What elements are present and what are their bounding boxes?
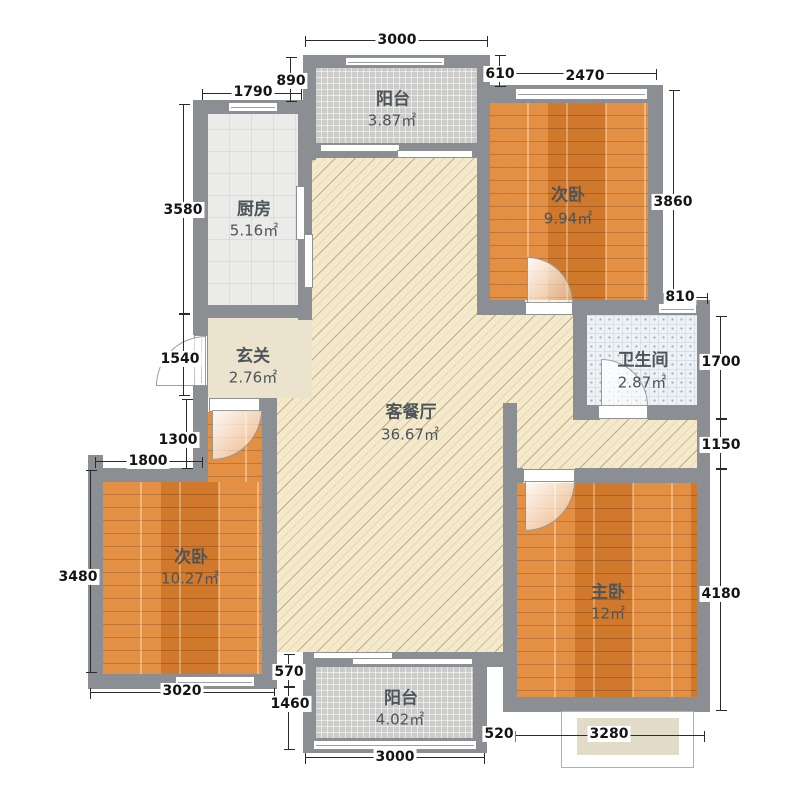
wall — [193, 305, 312, 318]
dim-label-kitchen-depth: 3580 — [162, 202, 205, 218]
sliding-door-balcony-top-panel — [320, 144, 400, 152]
sliding-door-kitchen-panel — [296, 186, 305, 240]
window-balcony-top — [345, 57, 445, 66]
wall — [503, 403, 517, 712]
room-label-balcony-bottom: 阳台 — [384, 684, 418, 709]
room-area-balcony-top: 3.87㎡ — [368, 110, 416, 131]
dim-label-bedroom-top-depth: 3860 — [652, 194, 695, 210]
dim-label-bath-offset: 810 — [663, 289, 696, 305]
room-label-living: 客餐厅 — [386, 398, 437, 423]
room-area-living: 36.67㎡ — [381, 424, 439, 445]
room-label-bedroom-left: 次卧 — [174, 543, 208, 568]
room-area-master: 12㎡ — [591, 603, 625, 624]
room-label-master: 主卧 — [591, 578, 625, 603]
floor-plan: 3000 1790 890 610 2470 3580 1540 1300 18… — [0, 0, 800, 800]
window-bedroom-top — [515, 88, 648, 100]
dim-label-balcony2-depth: 1460 — [269, 696, 312, 712]
dim-label-bedroom-top-width: 2470 — [564, 68, 607, 84]
window-kitchen — [228, 102, 278, 112]
wall — [477, 300, 525, 315]
dim-label-bedroom-left-depth: 3480 — [57, 569, 100, 585]
dim-label-bath-depth: 1700 — [700, 354, 743, 370]
dim-label-living-strip: 1150 — [700, 437, 743, 453]
dim-label-balcony2-offset: 570 — [272, 664, 305, 680]
bedroom-top-door — [525, 302, 573, 315]
sliding-door-kitchen-panel — [304, 234, 313, 288]
room-area-balcony-bottom: 4.02㎡ — [376, 709, 424, 730]
sliding-door-balcony-bottom-panel — [352, 658, 473, 665]
room-area-bathroom: 2.87㎡ — [618, 372, 666, 393]
room-label-bathroom: 卫生间 — [618, 346, 669, 371]
room-label-bedroom-top: 次卧 — [551, 181, 585, 206]
room-label-balcony-top: 阳台 — [376, 85, 410, 110]
room-area-bedroom-top: 9.94㎡ — [544, 208, 592, 229]
dim-label-kitchen-window: 1790 — [232, 84, 275, 100]
dim-label-bedroom-left-width: 3020 — [161, 683, 204, 699]
sliding-door-balcony-top-panel — [397, 150, 473, 158]
dim-label-master-depth: 4180 — [700, 586, 743, 602]
room-area-bedroom-left: 10.27㎡ — [161, 568, 219, 589]
room-area-kitchen: 5.16㎡ — [230, 220, 278, 241]
wall — [262, 398, 277, 674]
dim-label-bay-window-width: 3280 — [588, 726, 631, 742]
dim-label-entry-section: 1540 — [159, 351, 202, 367]
wall — [575, 468, 697, 483]
dim-label-bedroom-left-top: 1800 — [127, 453, 170, 469]
dim-label-balcony-top-width: 3000 — [376, 32, 419, 48]
bathroom-door — [598, 405, 648, 419]
outside-mask — [663, 155, 697, 302]
dim-label-bedroom-setback: 610 — [483, 66, 516, 82]
dim-label-notch-height: 1300 — [157, 432, 200, 448]
wall — [573, 405, 600, 420]
dim-label-balcony2-width: 3000 — [374, 749, 417, 765]
room-label-entry: 玄关 — [236, 342, 270, 367]
dim-label-master-offset: 520 — [482, 726, 515, 742]
room-area-entry: 2.76㎡ — [229, 367, 277, 388]
wall — [648, 405, 697, 420]
room-label-kitchen: 厨房 — [237, 195, 271, 220]
wall — [88, 468, 208, 482]
wall — [503, 697, 710, 712]
wall — [503, 468, 523, 483]
dim-label-kitchen-setback: 890 — [274, 73, 307, 89]
